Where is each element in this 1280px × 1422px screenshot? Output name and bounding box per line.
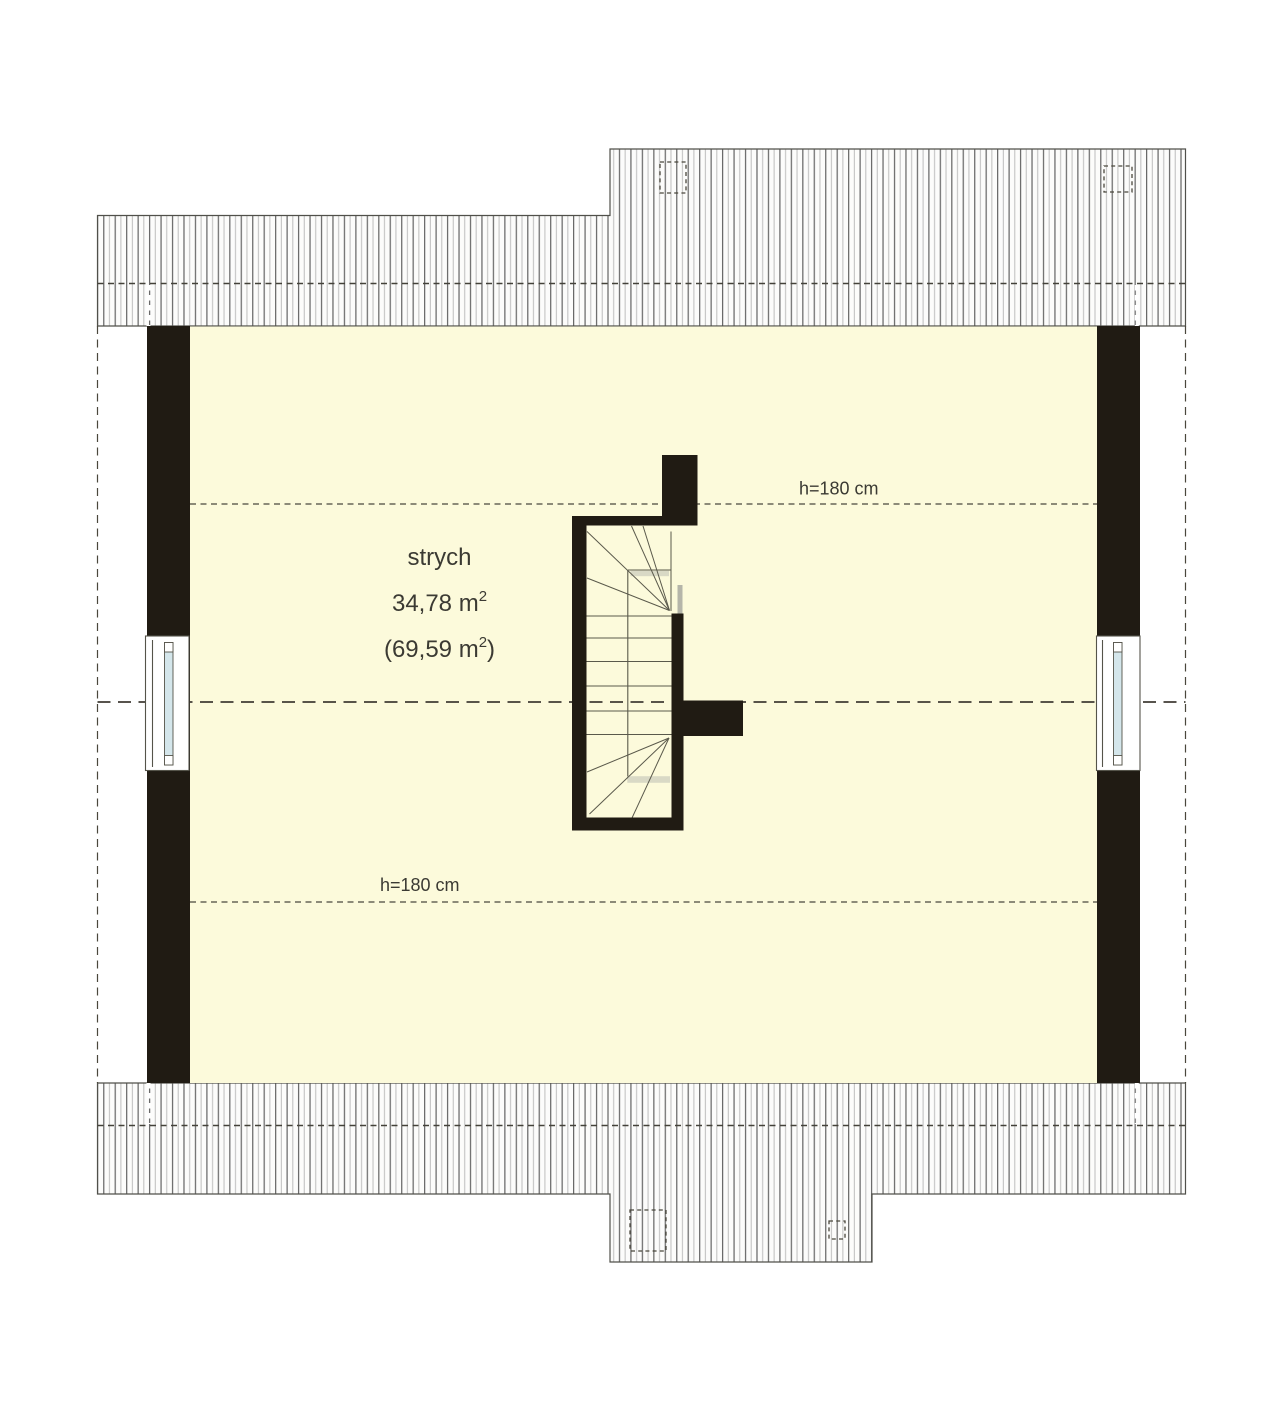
svg-text:strych: strych [407, 544, 471, 571]
svg-text:(69,59 m2): (69,59 m2) [384, 634, 495, 663]
svg-text:34,78 m2: 34,78 m2 [392, 588, 487, 617]
svg-text:h=180 cm: h=180 cm [799, 479, 879, 499]
svg-text:h=180 cm: h=180 cm [380, 875, 460, 895]
